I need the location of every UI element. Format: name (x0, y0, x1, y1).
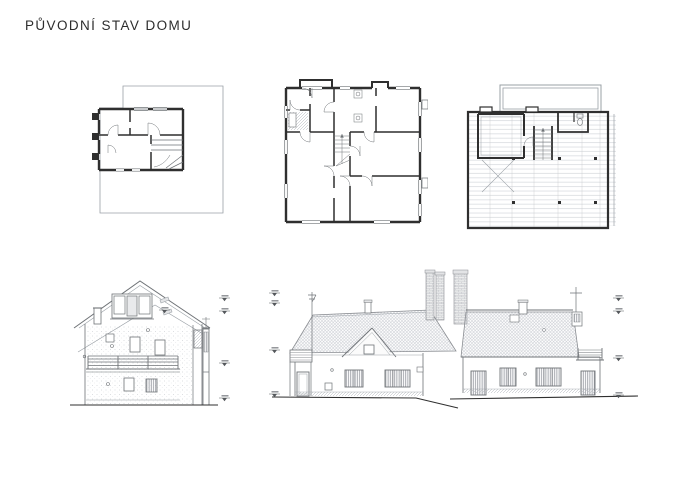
figure-basement-plan (88, 78, 233, 223)
plinth (463, 389, 600, 393)
floor-hatch (468, 112, 616, 228)
site-boundary (100, 86, 223, 213)
chimney (93, 308, 102, 324)
tall-chimneys (425, 270, 445, 320)
ground-line (450, 396, 638, 399)
bathroom-hatch (288, 112, 308, 130)
interior-walls (99, 109, 183, 170)
main-roof (461, 310, 579, 357)
windows-doors-stair (108, 108, 183, 172)
roof-vents (160, 297, 172, 315)
outer-walls (286, 80, 420, 222)
figure-front-elevation (266, 268, 462, 416)
level-marks (613, 296, 624, 398)
front-elevation-drawing (266, 268, 462, 416)
page-title: PŮVODNÍ STAV DOMU (25, 18, 192, 33)
figure-side-elevation (60, 272, 232, 417)
interior-walls (286, 88, 420, 222)
side-annex (193, 317, 210, 405)
rear-elevation-drawing (448, 268, 640, 408)
roof-ridge-outline (500, 85, 601, 112)
figure-rear-elevation (448, 268, 640, 408)
ground-floor-plan-drawing (276, 76, 428, 230)
figure-attic-plan (462, 80, 627, 235)
drawing-sheet: PŮVODNÍ STAV DOMU (0, 0, 700, 495)
outer-walls (92, 109, 183, 170)
ground-line (272, 397, 458, 408)
plinth (295, 392, 423, 396)
roof-chimney (364, 300, 372, 313)
dormer-window (110, 294, 154, 319)
attic-plan-drawing (462, 80, 627, 235)
level-marks (269, 291, 280, 397)
porch (290, 350, 312, 396)
basement-plan-drawing (88, 78, 233, 223)
windows (285, 87, 428, 224)
figure-ground-floor-plan (276, 76, 428, 230)
doors-and-stair (290, 88, 374, 186)
windows (325, 367, 423, 390)
side-elevation-drawing (60, 272, 232, 417)
